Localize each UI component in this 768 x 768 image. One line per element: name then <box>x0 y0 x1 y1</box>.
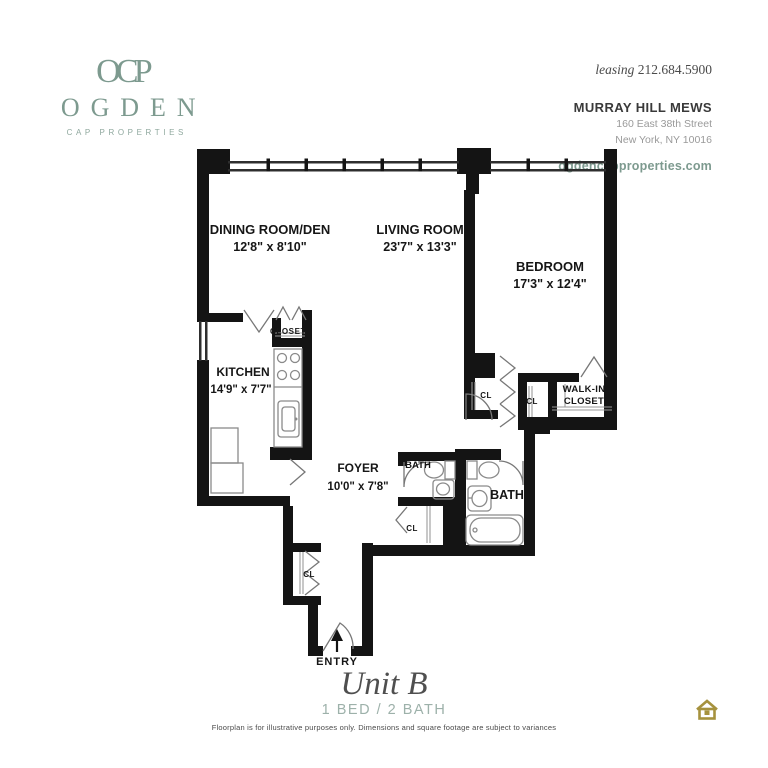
kitchen-south-door <box>290 459 305 485</box>
walkin-closet-door <box>581 357 607 377</box>
room-dims-foyer: 10'0" x 7'8" <box>327 481 388 493</box>
toilet-tank <box>467 461 477 479</box>
room-dims-dining: 12'8" x 8'10" <box>233 240 306 254</box>
room-label-kitchen: KITCHEN <box>216 365 269 379</box>
floorplan-drawing: DINING ROOM/DEN 12'8" x 8'10" LIVING ROO… <box>0 0 768 768</box>
unit-name: Unit B <box>0 666 768 703</box>
label-cl-hall: CL <box>480 391 491 400</box>
label-walkin-line1: WALK-IN <box>563 384 606 395</box>
hall-closet-doors <box>500 356 515 427</box>
room-dims-bedroom: 17'3" x 12'4" <box>513 277 586 291</box>
label-kitchen-closet: CLOSET <box>270 327 306 336</box>
kitchen-cabinet <box>211 463 243 493</box>
equal-housing-icon <box>694 698 720 722</box>
label-walkin-line2: CLOSET <box>564 396 604 407</box>
unit-config: 1 BED / 2 BATH <box>0 702 768 718</box>
room-label-living: LIVING ROOM <box>376 222 463 237</box>
refrigerator <box>211 428 238 463</box>
label-bath-small: BATH <box>405 460 431 471</box>
label-bath-big: BATH <box>490 488 524 502</box>
label-cl-foyer: CL <box>406 524 417 533</box>
entry-arrow-icon <box>331 629 343 652</box>
toilet-tank <box>445 461 455 479</box>
door-arcs <box>323 394 523 651</box>
room-label-bedroom: BEDROOM <box>516 259 584 274</box>
big-bath-door-arc <box>499 461 523 485</box>
toilet-bowl <box>479 462 499 478</box>
room-dims-kitchen: 14'9" x 7'7" <box>210 384 271 396</box>
room-dims-living: 23'7" x 13'3" <box>383 240 456 254</box>
label-cl-bedroom: CL <box>526 397 537 406</box>
room-label-dining: DINING ROOM/DEN <box>210 222 331 237</box>
disclaimer-text: Floorplan is for illustrative purposes o… <box>0 723 768 732</box>
room-label-foyer: FOYER <box>337 461 379 475</box>
label-cl-entry: CL <box>303 570 314 579</box>
